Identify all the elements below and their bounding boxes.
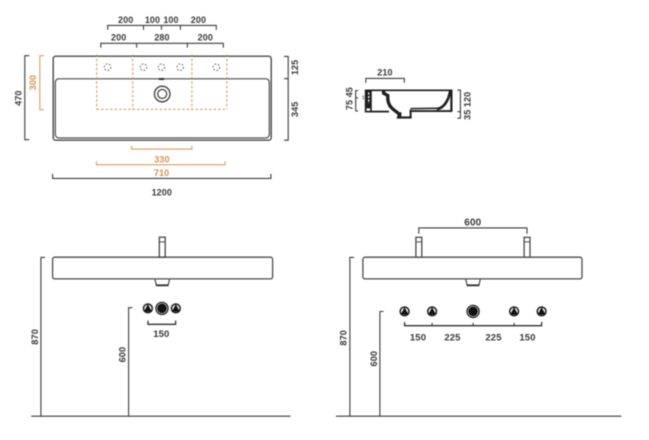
svg-text:345: 345 [290,102,300,117]
svg-text:75 45: 75 45 [344,87,354,110]
svg-text:470: 470 [14,91,24,106]
svg-text:225: 225 [485,332,502,343]
svg-text:100: 100 [145,15,160,25]
svg-text:200: 200 [118,15,133,25]
svg-text:330: 330 [154,155,169,165]
svg-text:870: 870 [338,330,348,346]
svg-text:200: 200 [191,15,206,25]
svg-text:600: 600 [464,218,481,229]
svg-text:150: 150 [410,332,426,343]
svg-text:150: 150 [153,329,169,340]
svg-text:870: 870 [30,329,40,345]
svg-text:280: 280 [154,33,169,43]
svg-text:225: 225 [444,332,461,343]
svg-text:300: 300 [28,75,38,90]
svg-text:200: 200 [111,33,126,43]
svg-text:150: 150 [519,332,535,343]
svg-text:125: 125 [290,60,300,75]
svg-text:210: 210 [377,67,392,77]
svg-text:35 120: 35 120 [463,92,473,120]
svg-text:710: 710 [154,168,169,178]
svg-text:1200: 1200 [152,187,172,197]
svg-text:600: 600 [118,347,128,363]
svg-text:100: 100 [163,15,178,25]
svg-text:200: 200 [198,33,213,43]
svg-text:600: 600 [369,351,379,367]
